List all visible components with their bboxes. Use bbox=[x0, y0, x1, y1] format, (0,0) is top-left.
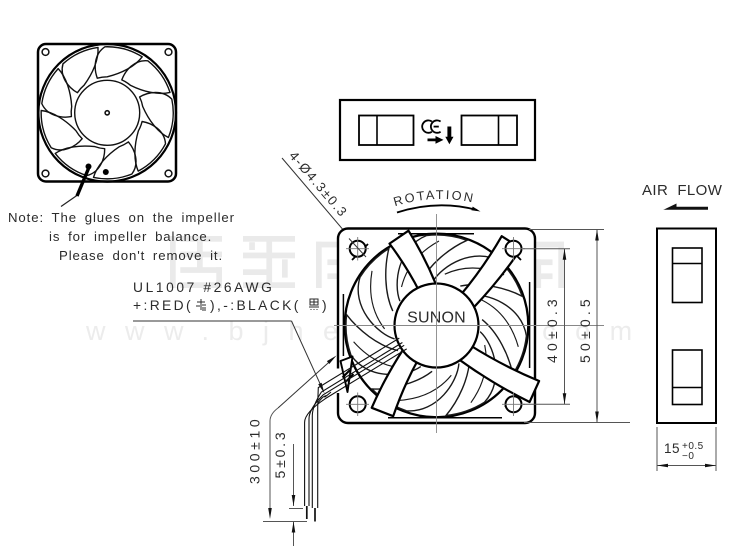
svg-text:15: 15 bbox=[664, 441, 680, 456]
svg-text:300±10: 300±10 bbox=[247, 416, 263, 484]
svg-text:UL1007 #26AWG: UL1007 #26AWG bbox=[133, 280, 274, 295]
svg-text:is for impeller balance.: is for impeller balance. bbox=[49, 229, 212, 244]
svg-text:−0: −0 bbox=[682, 451, 694, 462]
svg-text:): ) bbox=[322, 298, 329, 313]
svg-text:40±0.3: 40±0.3 bbox=[544, 295, 560, 363]
svg-text:Note: The glues on the impelle: Note: The glues on the impeller bbox=[8, 210, 235, 225]
svg-text:AIR FLOW: AIR FLOW bbox=[642, 182, 723, 199]
svg-text:Please don't remove it.: Please don't remove it. bbox=[59, 248, 223, 263]
svg-text:5±0.3: 5±0.3 bbox=[272, 430, 288, 479]
svg-text:+:RED(: +:RED( bbox=[133, 298, 193, 313]
svg-text:),-:BLACK(: ),-:BLACK( bbox=[210, 298, 301, 313]
svg-text:50±0.5: 50±0.5 bbox=[577, 295, 593, 363]
